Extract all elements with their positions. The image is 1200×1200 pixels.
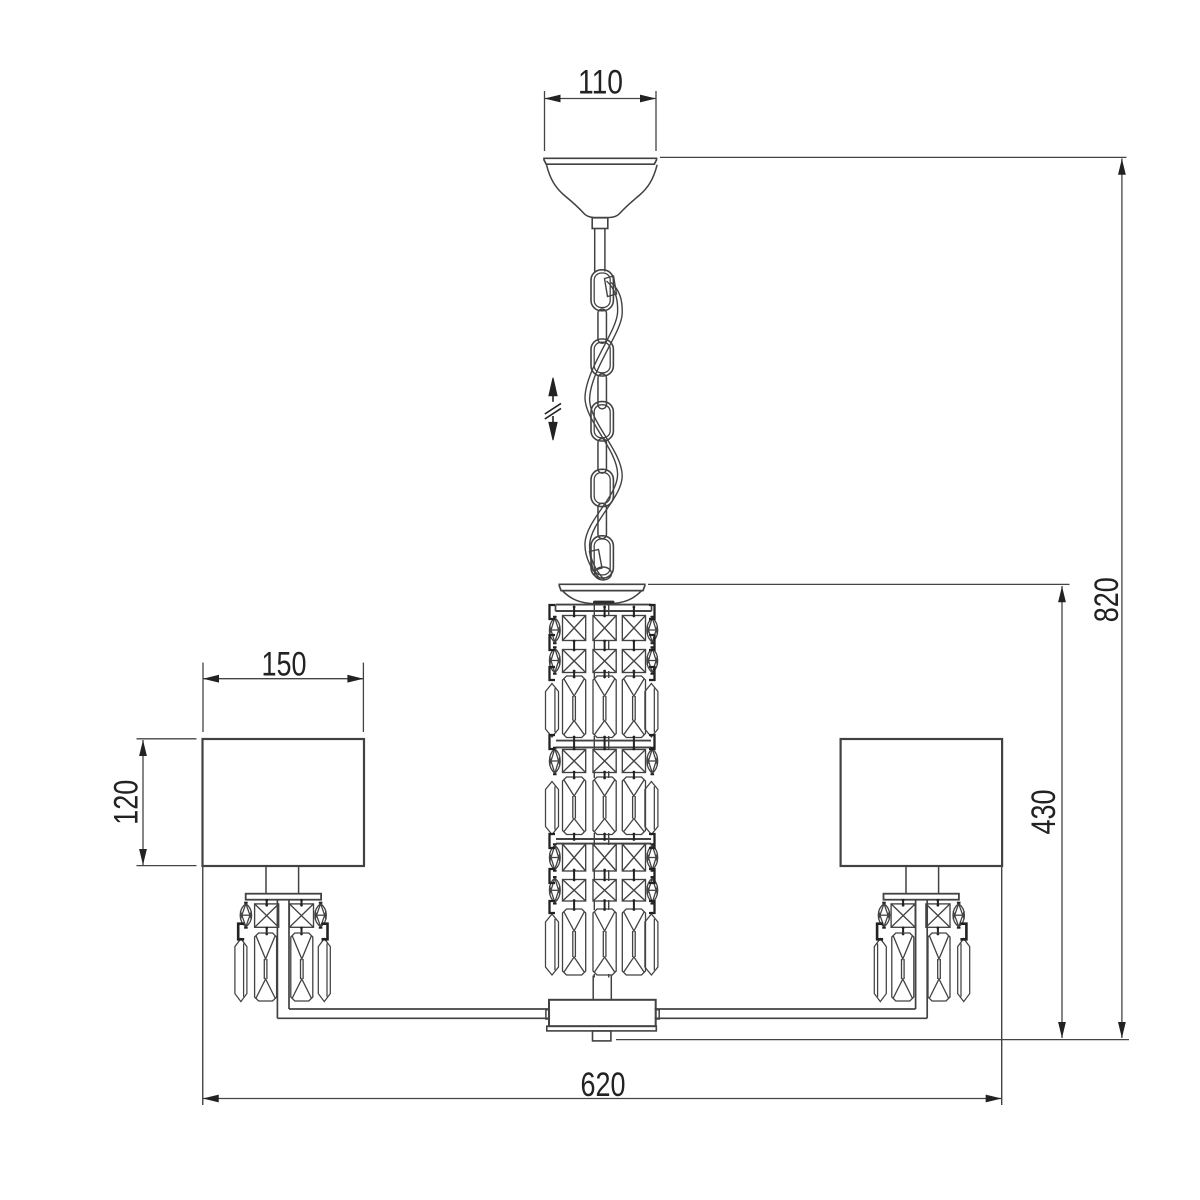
svg-text:110: 110 <box>578 63 623 101</box>
svg-text:120: 120 <box>108 780 146 825</box>
svg-text:430: 430 <box>1025 790 1063 835</box>
svg-text:150: 150 <box>262 646 307 684</box>
svg-text:820: 820 <box>1088 577 1126 622</box>
